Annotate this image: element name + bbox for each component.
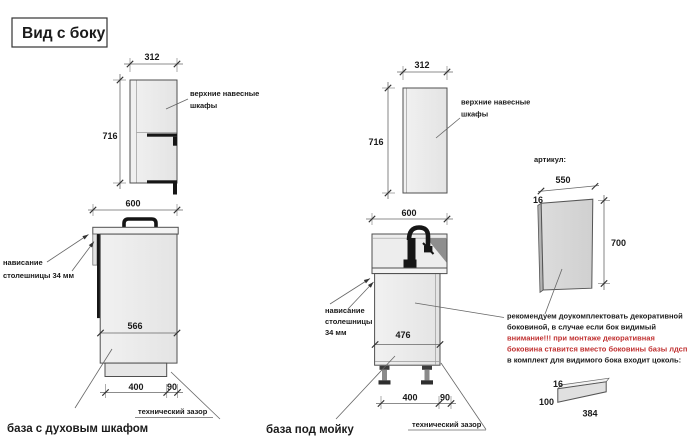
- middle-upper-cabinet: 312 716 верхние навесные шкафы: [368, 60, 530, 199]
- note-line1: рекомендуем доукомплектовать декоративно…: [507, 312, 683, 321]
- caption-oven-base: база с духовым шкафом: [7, 423, 148, 435]
- note-line4-warning: боковина ставится вместо боковины базы л…: [507, 345, 687, 354]
- countertop-middle: [372, 268, 447, 274]
- arrowhead: [364, 279, 370, 284]
- upper-cabinet-label-line1-middle: верхние навесные: [461, 98, 530, 107]
- overhang-note-line2-middle: столешницы: [325, 317, 372, 326]
- overhang-note-line3-middle: 34 мм: [325, 328, 347, 337]
- upper-cabinet-label-line2: шкафы: [190, 101, 217, 110]
- dim-height-upper-left: 716: [102, 131, 117, 141]
- countertop-overhang-edge: [93, 234, 97, 265]
- overhang-note-line1-left: нависание: [3, 258, 43, 267]
- dim-panel-width: 550: [555, 175, 570, 185]
- dim-width-base-middle: 600: [401, 208, 416, 218]
- dim-plinth-middle: 400: [402, 393, 417, 403]
- note-line2: боковиной, в случае если бок видимый: [507, 323, 656, 332]
- upper-cabinet-body-middle: [403, 88, 447, 193]
- dim-inner-height-left: 566: [127, 321, 142, 331]
- dim-width-base-left: 600: [125, 199, 140, 209]
- upper-cabinet-label-line2-middle: шкафы: [461, 110, 488, 119]
- title-box: Вид с боку: [12, 18, 107, 47]
- dim-plinth-height: 100: [539, 397, 554, 407]
- note-line5: в комплект для видимого бока входит цоко…: [507, 356, 681, 365]
- dim-width-upper-left: 312: [144, 52, 159, 62]
- dim-panel-height: 700: [611, 238, 626, 248]
- note-line3-warning: внимание!!! при монтаже декоративная: [507, 334, 655, 343]
- dim-plinth-left: 400: [128, 382, 143, 392]
- countertop-left: [93, 227, 178, 234]
- upper-cabinet-body-left: [130, 80, 177, 183]
- dim-height-upper-middle: 716: [368, 137, 383, 147]
- dim-width-upper-middle: 312: [414, 60, 429, 70]
- dim-gap-left: 90: [167, 382, 177, 392]
- oven-handle: [124, 219, 156, 228]
- adjustable-legs: [379, 366, 434, 385]
- left-base-cabinet: 600 566 400 90 нависание столешницы 34 м…: [3, 199, 220, 436]
- panel-front-face: [541, 199, 593, 290]
- dim-plinth-length: 384: [582, 409, 597, 419]
- decorative-panel-section: артикул: 550 16 700 рекомендуем доукомпл…: [507, 155, 687, 419]
- sink-base-body: [375, 274, 440, 366]
- middle-base-cabinet: 600 476 400 90 нависан: [266, 208, 504, 436]
- left-upper-cabinet: 312 716 верхние навесные шкафы: [102, 52, 259, 195]
- technical-drawing-canvas: Вид с боку 312 716 верхние навесные шкаф…: [0, 0, 700, 438]
- caption-sink-base: база под мойку: [266, 424, 354, 436]
- page-title: Вид с боку: [22, 25, 106, 42]
- dim-plinth-thickness: 16: [553, 379, 563, 389]
- overhang-note-line2-left: столешницы 34 мм: [3, 271, 74, 280]
- oven-base-body: [100, 234, 177, 363]
- shelf-bracket-top: [147, 134, 177, 137]
- arrowhead: [82, 235, 88, 240]
- tech-gap-note-middle: технический зазор: [412, 420, 482, 429]
- tech-gap-note-left: технический зазор: [138, 407, 208, 416]
- kitchen-side-view-drawing: Вид с боку 312 716 верхние навесные шкаф…: [0, 0, 700, 438]
- upper-cabinet-label-line1: верхние навесные: [190, 89, 259, 98]
- overhang-note-line1-middle: нависание: [325, 306, 365, 315]
- dim-gap-middle: 90: [440, 393, 450, 403]
- dim-inner-height-middle: 476: [395, 330, 410, 340]
- artikul-label: артикул:: [534, 155, 566, 164]
- shelf-bracket-bottom: [147, 180, 177, 183]
- plinth-left: [105, 363, 167, 376]
